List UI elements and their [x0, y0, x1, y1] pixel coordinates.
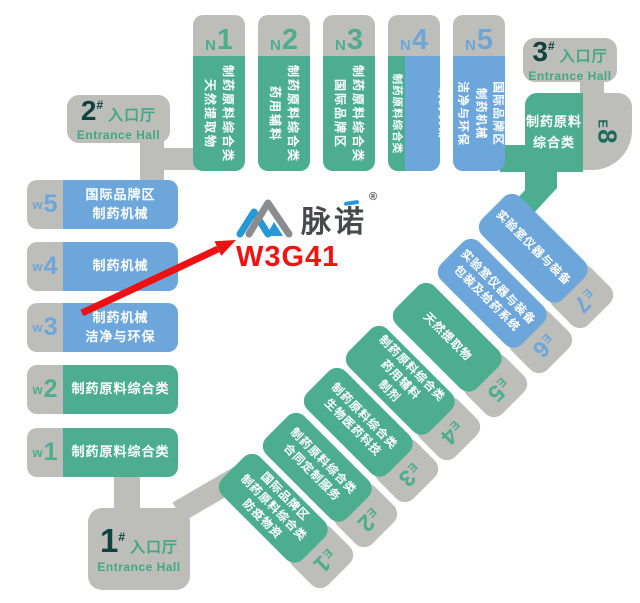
registered-trademark-symbol: ®	[369, 191, 377, 203]
logo-mountain-icon	[0, 0, 640, 603]
booth-code: W3G41	[236, 241, 339, 274]
logo-wordmark: 脉诺	[301, 197, 367, 241]
exhibition-floor-map: N1 制药原料综合类 天然提取物 N2 制药原料综合类 药用辅料 N3 制药原料…	[0, 0, 640, 603]
